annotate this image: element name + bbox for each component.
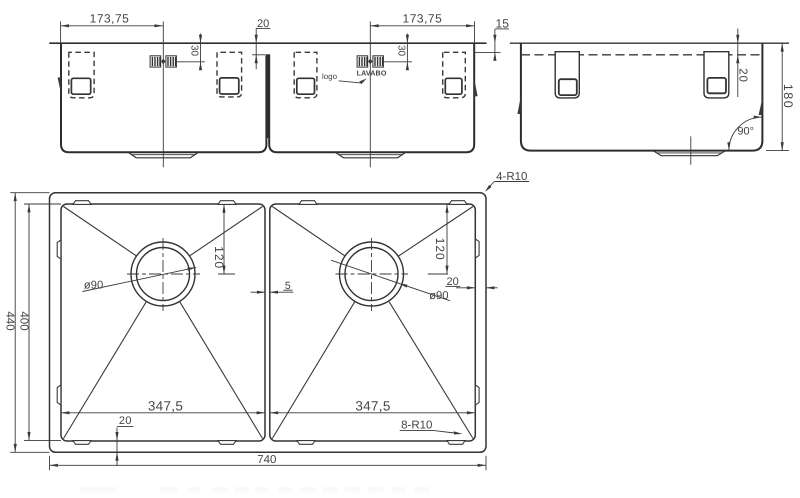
svg-text:740: 740 bbox=[257, 454, 276, 466]
svg-text:173,75: 173,75 bbox=[403, 12, 443, 26]
svg-text:30: 30 bbox=[396, 45, 407, 57]
svg-text:8-R10: 8-R10 bbox=[401, 420, 432, 432]
svg-text:90°: 90° bbox=[737, 126, 754, 138]
svg-text:120: 120 bbox=[433, 238, 447, 261]
svg-text:ø90: ø90 bbox=[429, 290, 448, 302]
svg-text:180: 180 bbox=[781, 84, 795, 109]
svg-text:120: 120 bbox=[212, 246, 226, 269]
svg-text:20: 20 bbox=[737, 68, 749, 82]
svg-text:347,5: 347,5 bbox=[355, 399, 390, 414]
svg-text:logo: logo bbox=[322, 72, 338, 81]
svg-text:20: 20 bbox=[119, 415, 132, 427]
svg-text:347,5: 347,5 bbox=[148, 399, 183, 414]
svg-text:173,75: 173,75 bbox=[90, 12, 130, 26]
svg-text:30: 30 bbox=[189, 45, 200, 57]
svg-text:400: 400 bbox=[17, 311, 29, 330]
svg-text:ø90: ø90 bbox=[84, 279, 103, 291]
svg-text:15: 15 bbox=[496, 17, 510, 31]
svg-text:440: 440 bbox=[4, 311, 16, 330]
svg-text:LAVABO: LAVABO bbox=[357, 68, 387, 77]
